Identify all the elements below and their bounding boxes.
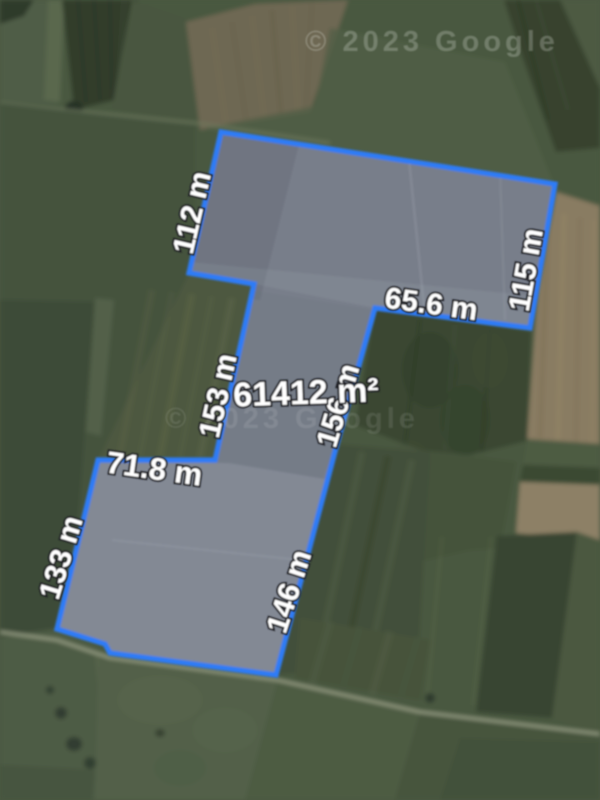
- svg-text:61412 m²: 61412 m²: [233, 371, 380, 414]
- svg-text:© 2023 Google: © 2023 Google: [305, 26, 559, 58]
